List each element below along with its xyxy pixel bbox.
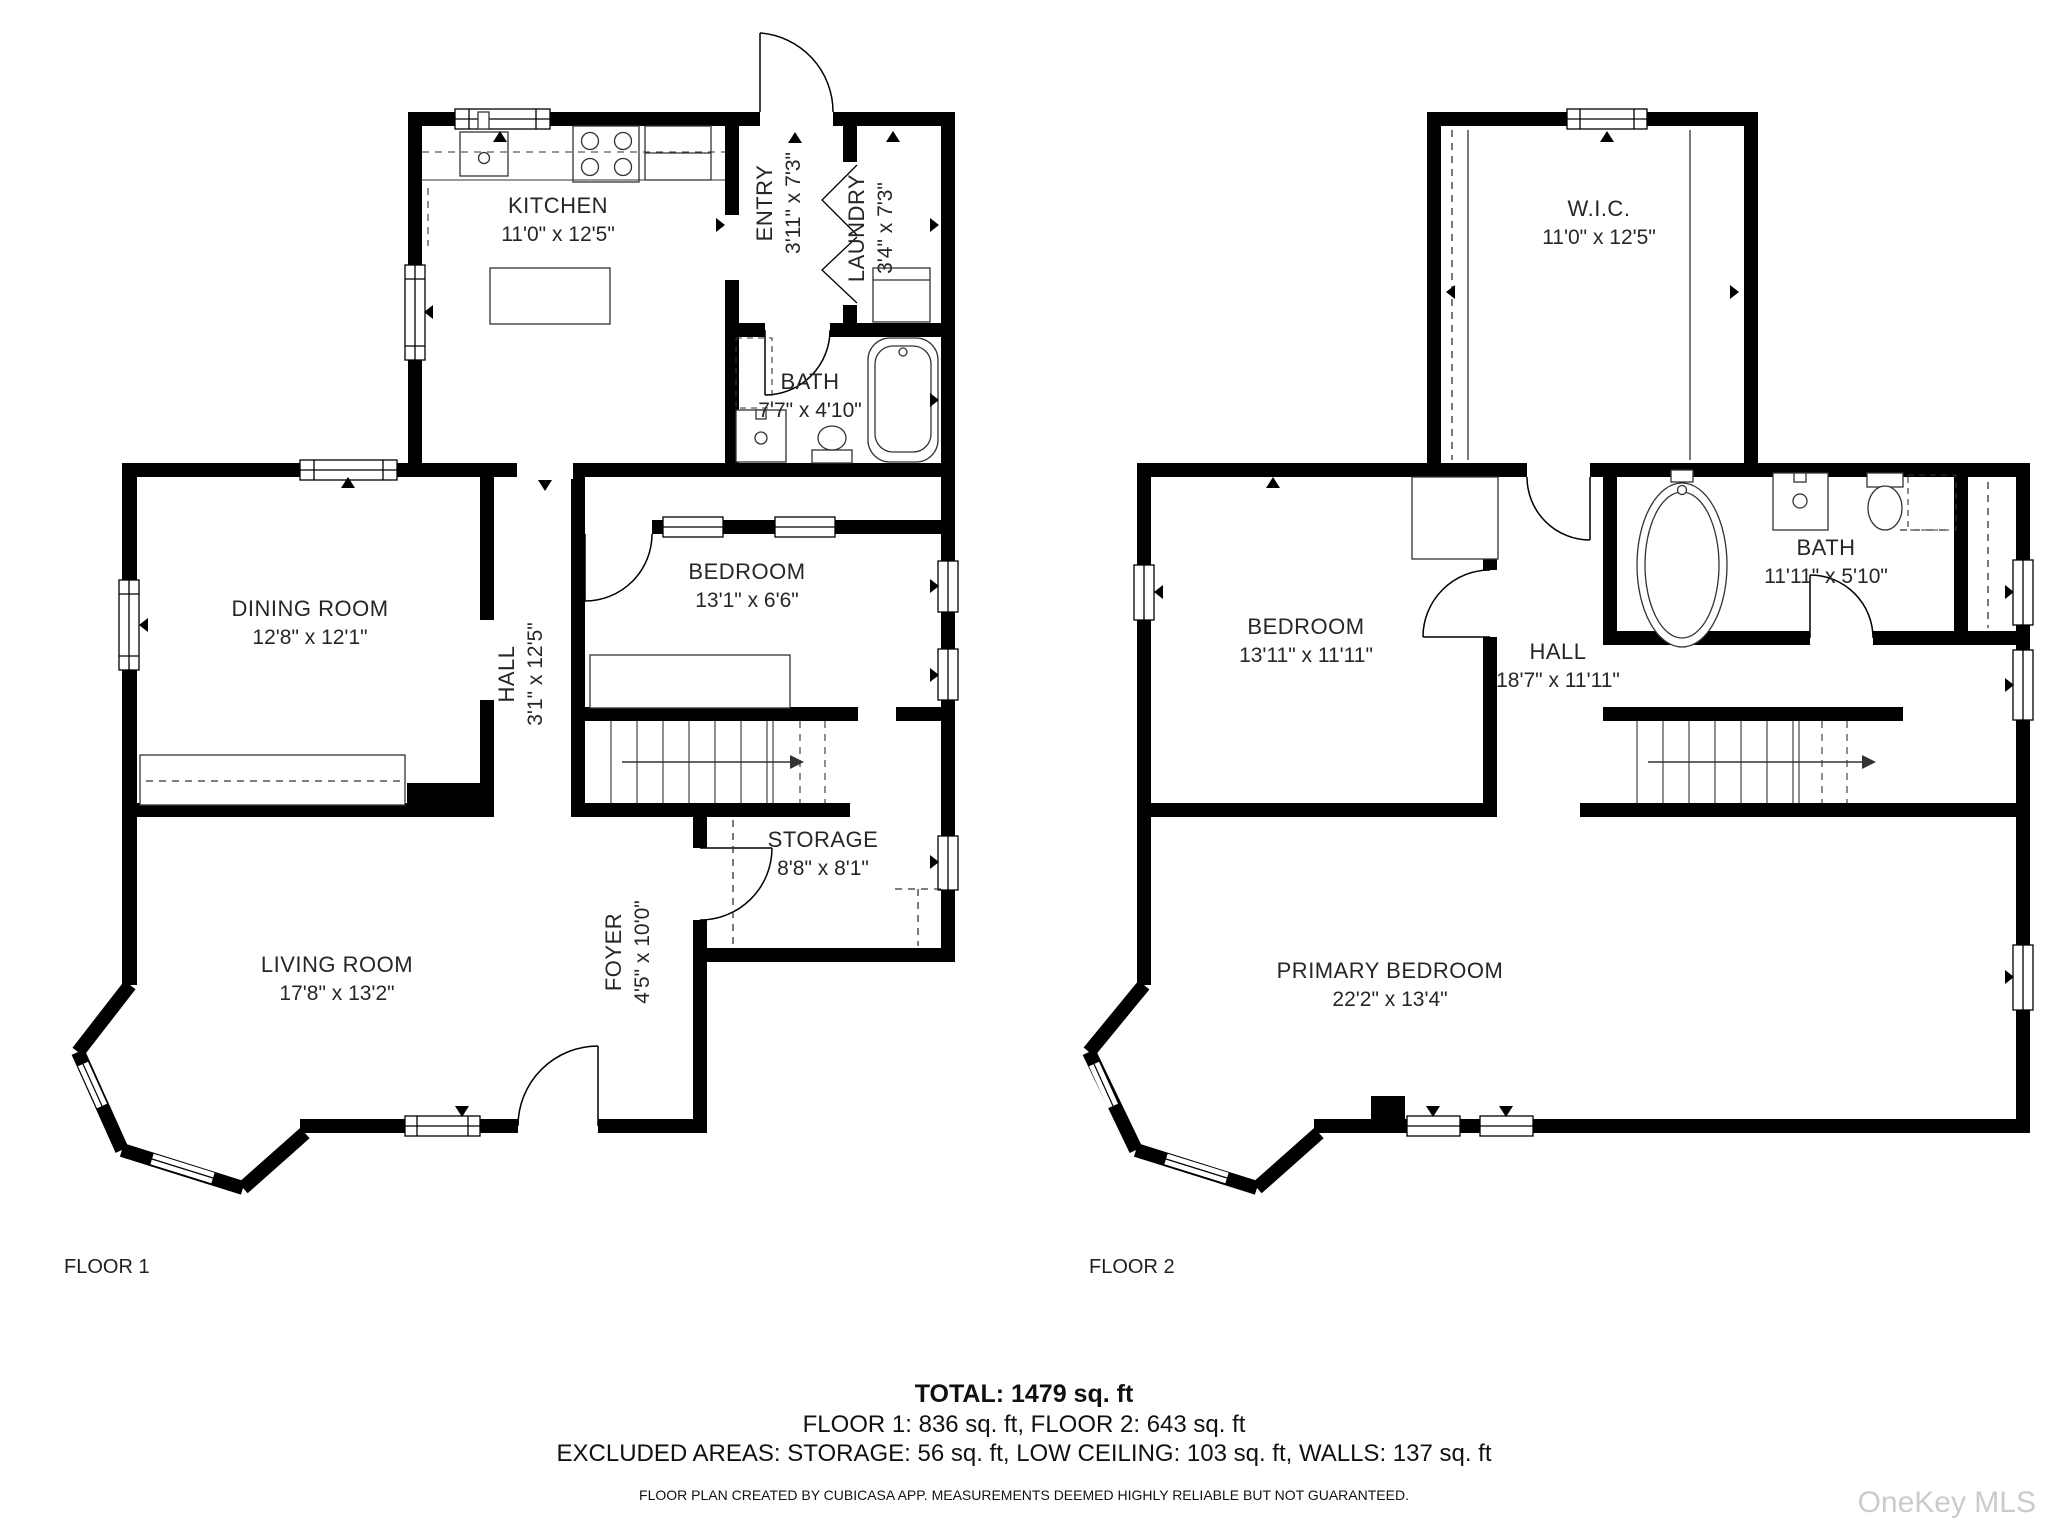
room-dims: 11'11" x 5'10" (1764, 563, 1888, 590)
room-dims: 7'7" x 4'10" (758, 397, 862, 424)
room-label-foyer: FOYER 4'5" x 10'0" (600, 900, 656, 1004)
floor-areas-text: FLOOR 1: 836 sq. ft, FLOOR 2: 643 sq. ft (803, 1411, 1246, 1439)
room-label-primary-bedroom: PRIMARY BEDROOM 22'2" x 13'4" (1277, 957, 1504, 1013)
room-label-wic: W.I.C. 11'0" x 12'5" (1542, 195, 1656, 251)
room-name: LIVING ROOM (261, 951, 413, 980)
room-label-bath1: BATH 7'7" x 4'10" (758, 368, 862, 424)
room-name: LAUNDRY (843, 174, 872, 282)
room-name: W.I.C. (1542, 195, 1656, 224)
room-dims: 11'0" x 12'5" (501, 221, 615, 248)
room-label-bedroom2: BEDROOM 13'11" x 11'11" (1239, 613, 1373, 669)
total-area-text: TOTAL: 1479 sq. ft (915, 1380, 1134, 1409)
floor1-label: FLOOR 1 (64, 1256, 150, 1279)
floor2-stairs (1637, 721, 1876, 803)
room-name: STORAGE (768, 826, 879, 855)
room-name: DINING ROOM (231, 595, 388, 624)
room-dims: 11'0" x 12'5" (1542, 224, 1656, 251)
room-dims: 22'2" x 13'4" (1277, 986, 1504, 1013)
room-label-bedroom1: BEDROOM 13'1" x 6'6" (688, 558, 805, 614)
room-label-kitchen: KITCHEN 11'0" x 12'5" (501, 192, 615, 248)
room-name: BATH (1764, 534, 1888, 563)
room-name: FOYER (600, 900, 629, 1004)
room-dims: 13'11" x 11'11" (1239, 642, 1373, 669)
room-name: BATH (758, 368, 862, 397)
room-dims: 13'1" x 6'6" (688, 587, 805, 614)
watermark: OneKey MLS (1858, 1486, 2036, 1520)
room-label-bath2: BATH 11'11" x 5'10" (1764, 534, 1888, 590)
room-name: KITCHEN (501, 192, 615, 221)
floorplan-drawing (0, 0, 2048, 1536)
room-dims: 8'8" x 8'1" (768, 855, 879, 882)
room-name: BEDROOM (1239, 613, 1373, 642)
room-dims: 3'1" x 12'5" (522, 622, 549, 726)
room-label-laundry: LAUNDRY 3'4" x 7'3" (843, 174, 899, 282)
room-label-hall2: HALL 18'7" x 11'11" (1496, 638, 1620, 694)
room-label-living-room: LIVING ROOM 17'8" x 13'2" (261, 951, 413, 1007)
room-dims: 4'5" x 10'0" (629, 900, 656, 1004)
room-dims: 18'7" x 11'11" (1496, 667, 1620, 694)
floor1-stairs (611, 721, 825, 803)
floor2-fixtures (1412, 130, 1988, 647)
room-dims: 17'8" x 13'2" (261, 980, 413, 1007)
floor2-label: FLOOR 2 (1089, 1256, 1175, 1279)
room-label-entry: ENTRY 3'11" x 7'3" (751, 152, 807, 254)
room-name: ENTRY (751, 152, 780, 254)
room-name: HALL (493, 622, 522, 726)
excluded-areas-text: EXCLUDED AREAS: STORAGE: 56 sq. ft, LOW … (556, 1440, 1491, 1468)
room-name: HALL (1496, 638, 1620, 667)
room-name: BEDROOM (688, 558, 805, 587)
room-dims: 3'11" x 7'3" (780, 152, 807, 254)
room-dims: 12'8" x 12'1" (231, 624, 388, 651)
disclaimer-text: FLOOR PLAN CREATED BY CUBICASA APP. MEAS… (639, 1487, 1409, 1503)
room-name: PRIMARY BEDROOM (1277, 957, 1504, 986)
room-label-dining-room: DINING ROOM 12'8" x 12'1" (231, 595, 388, 651)
room-dims: 3'4" x 7'3" (872, 174, 899, 282)
floorplan-page: KITCHEN 11'0" x 12'5" ENTRY 3'11" x 7'3"… (0, 0, 2048, 1536)
room-label-hall1: HALL 3'1" x 12'5" (493, 622, 549, 726)
room-label-storage: STORAGE 8'8" x 8'1" (768, 826, 879, 882)
